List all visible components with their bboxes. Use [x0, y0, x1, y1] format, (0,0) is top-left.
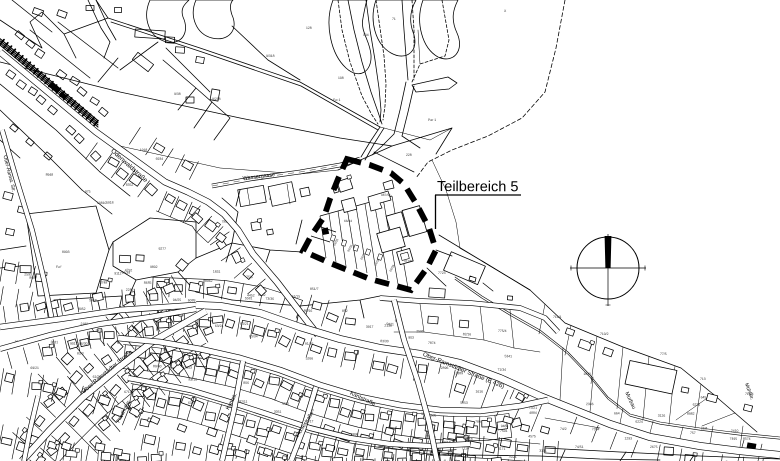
svg-text:83/3: 83/3 — [77, 352, 84, 356]
svg-text:108: 108 — [338, 76, 344, 80]
svg-text:9484: 9484 — [501, 424, 509, 428]
svg-text:806: 806 — [243, 381, 249, 385]
svg-text:6712: 6712 — [124, 390, 132, 394]
svg-text:2138: 2138 — [384, 324, 392, 328]
svg-text:9277: 9277 — [158, 247, 166, 251]
svg-text:2675: 2675 — [650, 445, 658, 449]
svg-text:63/3: 63/3 — [188, 401, 195, 405]
svg-text:3131: 3131 — [539, 449, 547, 453]
svg-text:8574: 8574 — [743, 437, 751, 441]
svg-text:6089: 6089 — [188, 298, 196, 302]
svg-text:7354: 7354 — [592, 427, 600, 431]
svg-text:Fw": Fw" — [56, 265, 63, 269]
svg-text:903: 903 — [408, 336, 414, 340]
svg-text:3031: 3031 — [51, 340, 59, 344]
svg-text:757: 757 — [690, 431, 696, 435]
svg-text:710/2: 710/2 — [600, 332, 609, 336]
svg-text:7501: 7501 — [500, 429, 508, 433]
svg-text:2111: 2111 — [701, 426, 708, 430]
svg-text:789: 789 — [475, 420, 481, 424]
svg-text:987/91: 987/91 — [381, 193, 391, 197]
svg-text:8903: 8903 — [62, 250, 70, 254]
svg-text:71/34: 71/34 — [497, 368, 506, 372]
svg-text:3553: 3553 — [184, 366, 192, 370]
svg-text:3126: 3126 — [658, 414, 666, 418]
svg-text:9/318: 9/318 — [266, 54, 275, 58]
svg-text:86/16: 86/16 — [304, 309, 313, 313]
svg-text:8948: 8948 — [46, 173, 54, 177]
svg-text:75/6: 75/6 — [246, 275, 253, 279]
svg-text:977/8: 977/8 — [404, 259, 412, 263]
svg-text:74/51: 74/51 — [575, 445, 584, 449]
svg-text:89/40: 89/40 — [153, 364, 162, 368]
svg-text:3917: 3917 — [366, 325, 374, 329]
svg-text:645: 645 — [701, 395, 707, 399]
svg-text:5918: 5918 — [106, 201, 114, 205]
svg-text:9112: 9112 — [114, 272, 121, 276]
svg-text:5853: 5853 — [460, 401, 468, 405]
svg-text:4575: 4575 — [528, 434, 536, 438]
svg-text:81/21: 81/21 — [240, 322, 249, 326]
svg-text:6225: 6225 — [693, 403, 701, 407]
svg-text:69/21: 69/21 — [30, 366, 39, 370]
svg-text:3051: 3051 — [274, 410, 282, 414]
svg-text:9017: 9017 — [70, 342, 78, 346]
svg-text:775/4: 775/4 — [498, 329, 507, 333]
svg-text:851/7: 851/7 — [310, 287, 319, 291]
svg-text:1293: 1293 — [624, 437, 632, 441]
svg-text:713: 713 — [700, 377, 706, 381]
svg-text:9/218: 9/218 — [212, 97, 221, 101]
svg-text:Teilbereich 5: Teilbereich 5 — [437, 179, 518, 195]
svg-text:8952: 8952 — [78, 307, 86, 311]
svg-text:85/34: 85/34 — [249, 334, 258, 338]
svg-text:63/24: 63/24 — [215, 324, 224, 328]
svg-text:6552: 6552 — [126, 183, 134, 187]
svg-text:7495: 7495 — [730, 437, 738, 441]
svg-text:73/36: 73/36 — [265, 297, 274, 301]
svg-text:975: 975 — [85, 190, 91, 194]
svg-text:3171: 3171 — [498, 447, 506, 451]
svg-text:1918: 1918 — [140, 148, 148, 152]
svg-text:1830: 1830 — [583, 372, 591, 376]
svg-text:2593: 2593 — [24, 273, 32, 277]
svg-text:710/1: 710/1 — [553, 315, 562, 319]
svg-text:128: 128 — [306, 26, 312, 30]
svg-text:Fw 1: Fw 1 — [333, 98, 340, 102]
svg-text:7874: 7874 — [428, 341, 436, 345]
svg-text:66/34: 66/34 — [344, 219, 352, 223]
svg-text:9/38: 9/38 — [174, 92, 181, 96]
svg-text:664: 664 — [614, 411, 620, 415]
svg-text:5811: 5811 — [96, 329, 103, 333]
svg-text:Par 1: Par 1 — [428, 118, 436, 122]
svg-text:91/25: 91/25 — [305, 342, 314, 346]
svg-text:83/30: 83/30 — [380, 339, 389, 343]
svg-text:96/30: 96/30 — [79, 342, 88, 346]
svg-text:2591: 2591 — [416, 329, 424, 333]
svg-text:1831: 1831 — [213, 270, 221, 274]
svg-text:5458: 5458 — [89, 298, 97, 302]
svg-text:71: 71 — [392, 17, 396, 21]
svg-text:2410: 2410 — [731, 429, 739, 433]
svg-text:9802: 9802 — [150, 265, 158, 269]
svg-text:6224: 6224 — [635, 420, 643, 424]
svg-text:2282: 2282 — [126, 288, 134, 292]
svg-text:77/5: 77/5 — [660, 352, 667, 356]
svg-text:2346: 2346 — [586, 402, 594, 406]
svg-text:1616: 1616 — [475, 390, 483, 394]
svg-text:8485: 8485 — [144, 281, 152, 285]
svg-text:90/18: 90/18 — [464, 437, 473, 441]
svg-text:4761: 4761 — [447, 452, 455, 456]
svg-text:3748: 3748 — [100, 281, 108, 285]
svg-text:82/16: 82/16 — [463, 332, 472, 336]
svg-text:7723: 7723 — [438, 271, 446, 275]
svg-text:94/25: 94/25 — [173, 298, 182, 302]
svg-text:6934: 6934 — [156, 157, 164, 161]
svg-text:104: 104 — [363, 33, 369, 37]
svg-text:5581: 5581 — [245, 296, 253, 300]
svg-text:83/10: 83/10 — [188, 378, 197, 382]
svg-text:7260: 7260 — [281, 402, 289, 406]
svg-text:74/2: 74/2 — [560, 427, 567, 431]
svg-text:64/39: 64/39 — [122, 271, 131, 275]
svg-text:75/21: 75/21 — [508, 455, 517, 459]
svg-text:5266: 5266 — [306, 357, 314, 361]
svg-text:228: 228 — [406, 153, 412, 157]
svg-text:4884: 4884 — [529, 411, 537, 415]
svg-text:8982: 8982 — [687, 412, 695, 416]
svg-text:5341: 5341 — [504, 354, 512, 358]
